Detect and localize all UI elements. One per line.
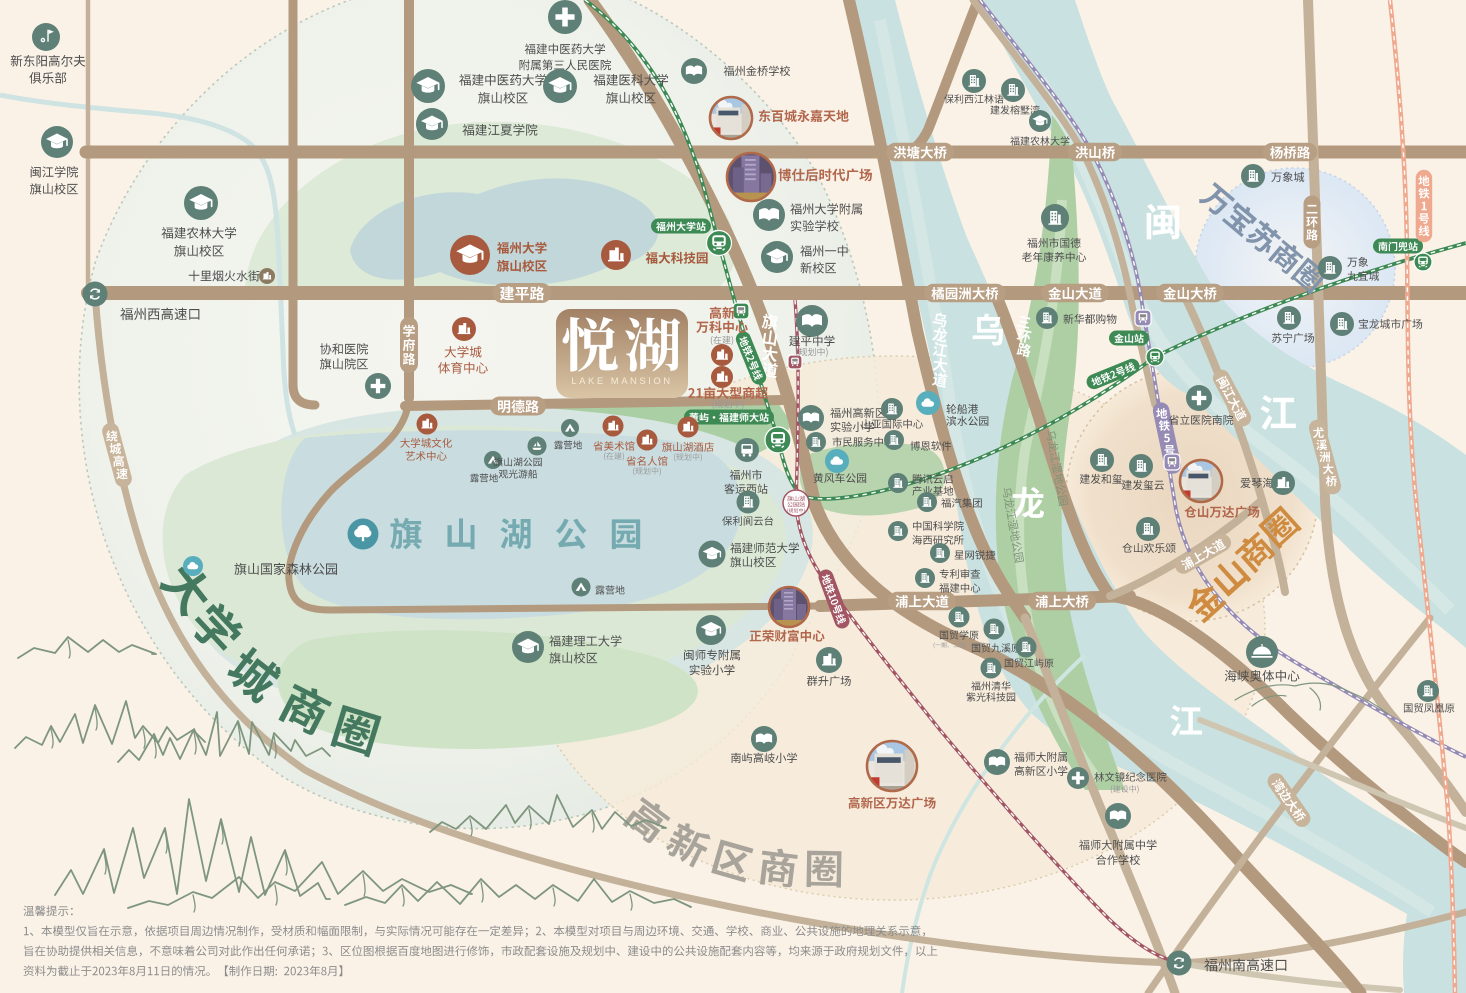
- svg-text:LAKE MANSION: LAKE MANSION: [571, 376, 672, 387]
